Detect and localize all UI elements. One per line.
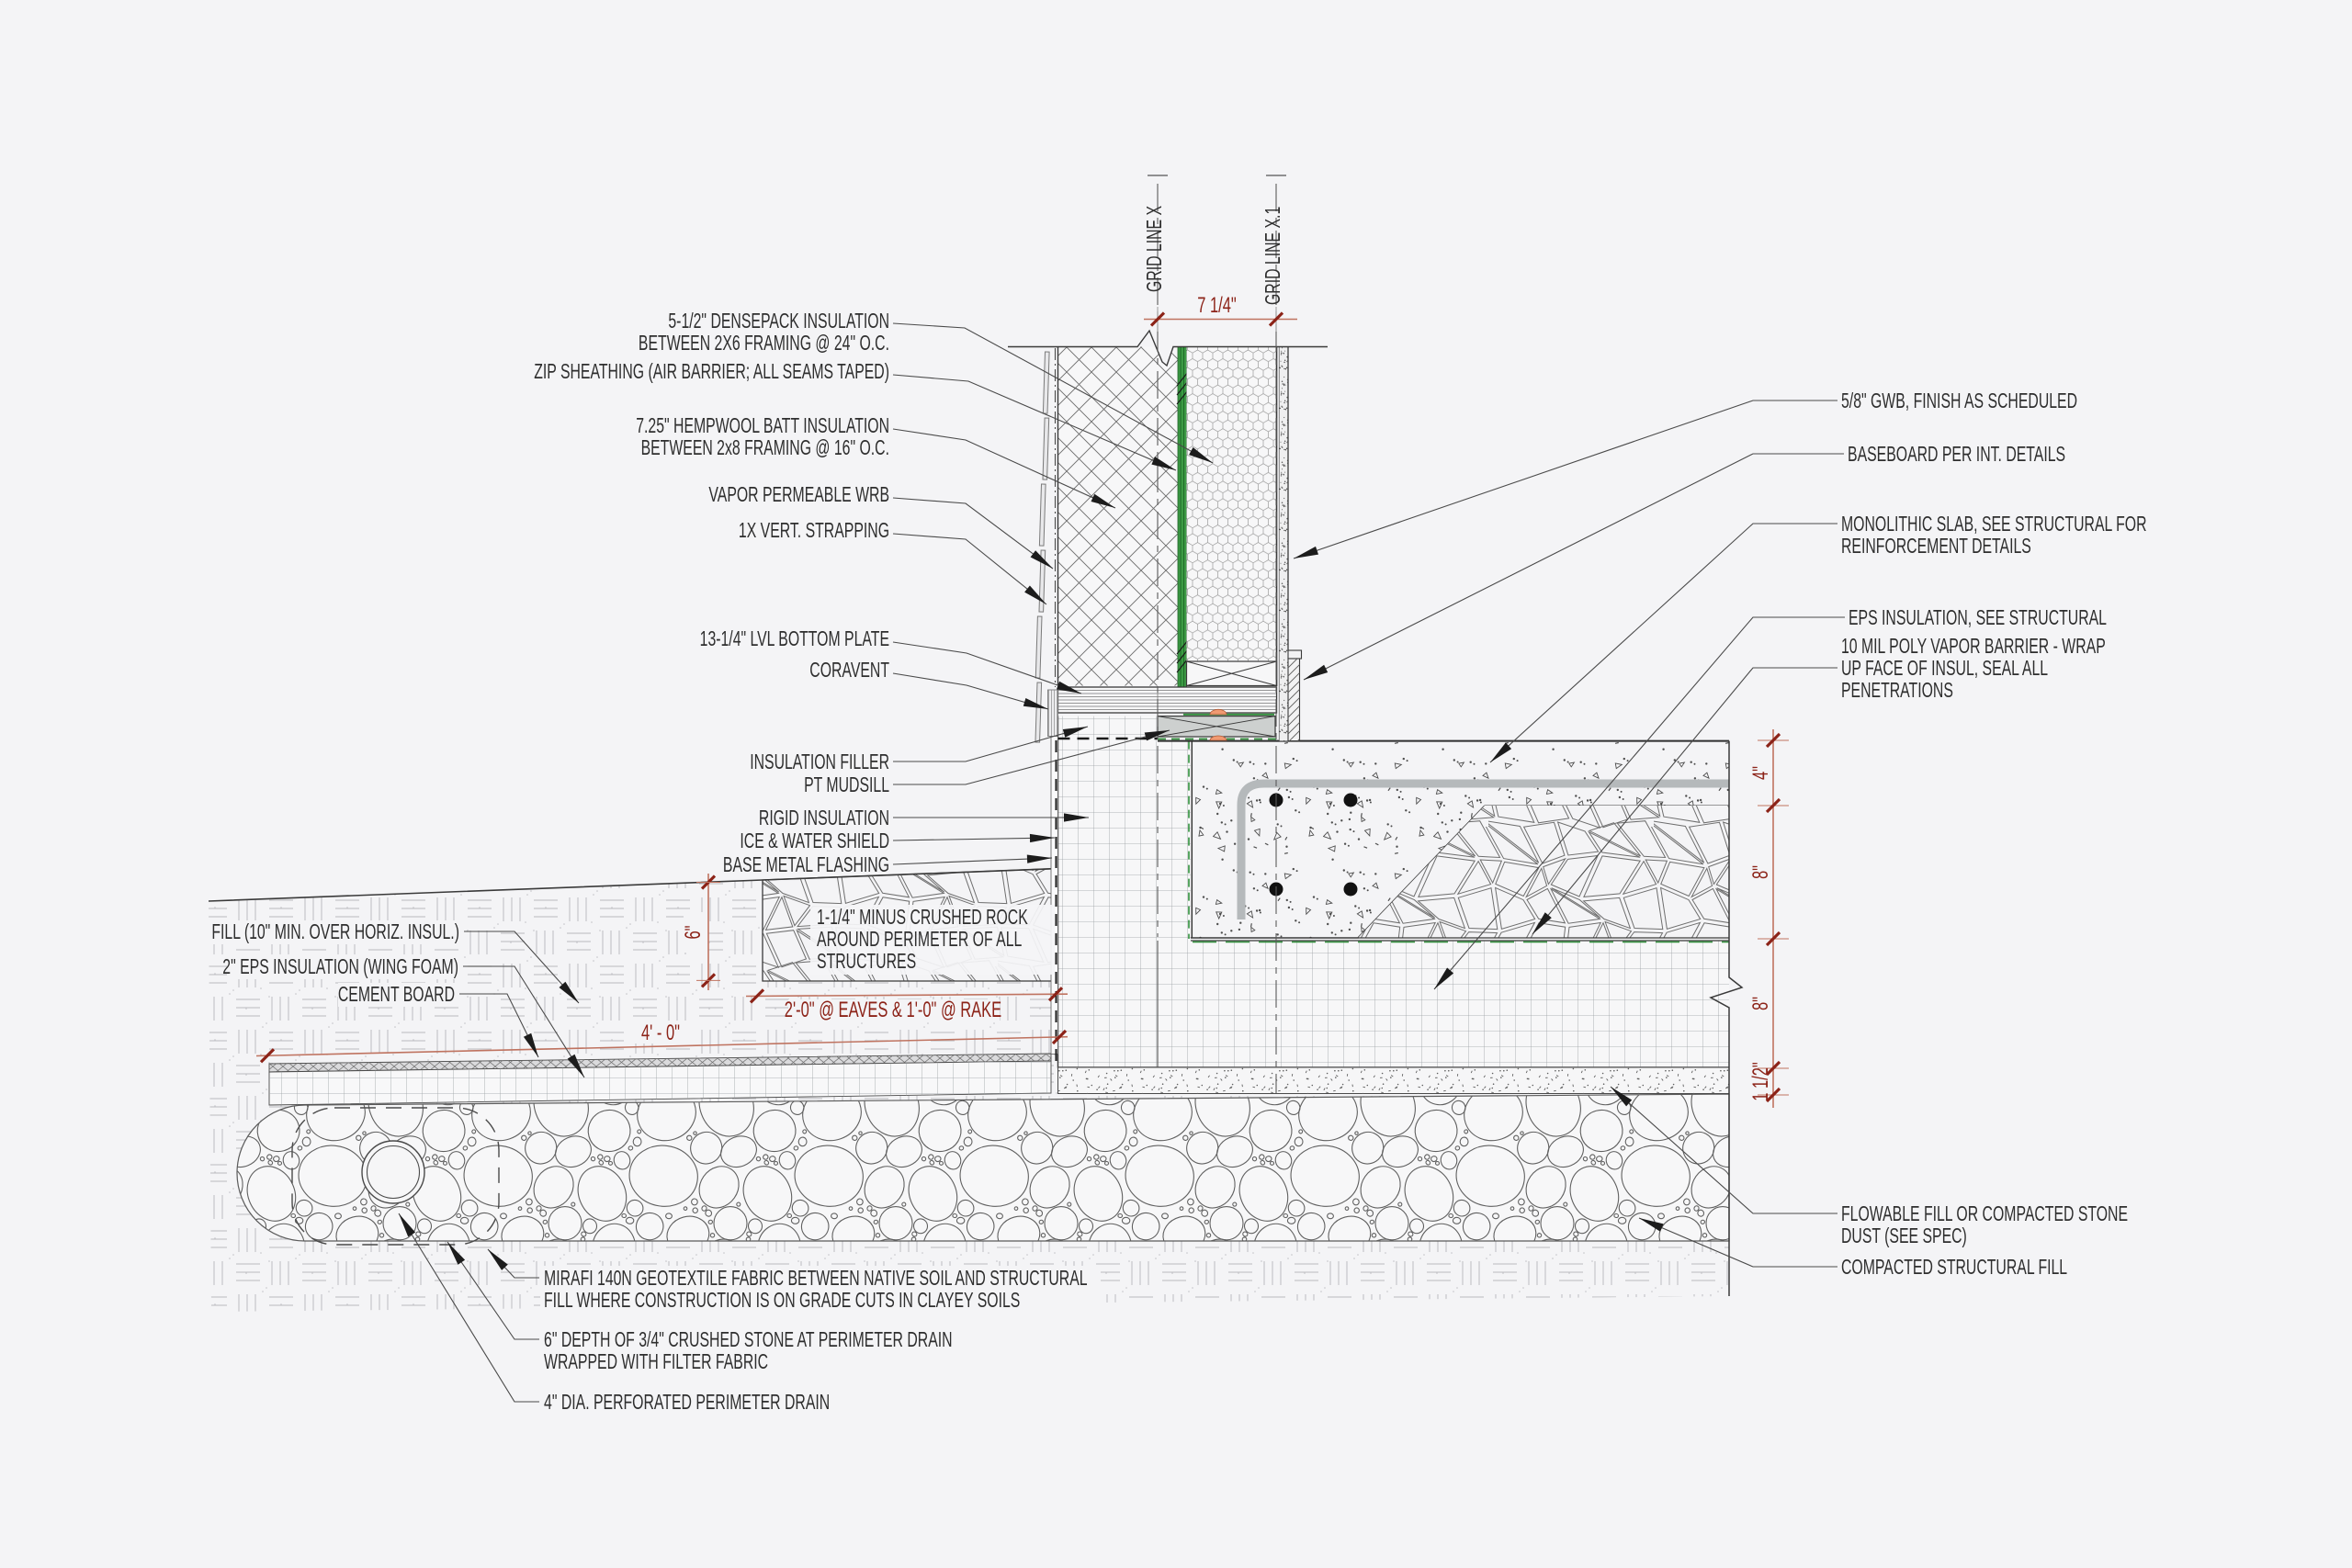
svg-text:VAPOR PERMEABLE WRB: VAPOR PERMEABLE WRB	[708, 483, 889, 507]
svg-text:GRID LINE X.1: GRID LINE X.1	[1261, 207, 1285, 305]
svg-text:5-1/2" DENSEPACK INSULATION: 5-1/2" DENSEPACK INSULATION	[668, 310, 889, 333]
svg-text:CEMENT BOARD: CEMENT BOARD	[338, 983, 455, 1007]
svg-text:FILL WHERE CONSTRUCTION IS ON: FILL WHERE CONSTRUCTION IS ON GRADE CUTS…	[544, 1289, 1020, 1313]
svg-text:4" DIA. PERFORATED PERIMETER D: 4" DIA. PERFORATED PERIMETER DRAIN	[544, 1391, 830, 1415]
svg-text:UP FACE OF INSUL, SEAL ALL: UP FACE OF INSUL, SEAL ALL	[1841, 657, 2048, 681]
svg-text:DUST (SEE SPEC): DUST (SEE SPEC)	[1841, 1224, 1967, 1248]
svg-text:COMPACTED STRUCTURAL FILL: COMPACTED STRUCTURAL FILL	[1841, 1256, 2067, 1280]
svg-text:10 MIL POLY VAPOR BARRIER - WR: 10 MIL POLY VAPOR BARRIER - WRAP	[1841, 635, 2106, 659]
svg-text:5/8" GWB, FINISH AS SCHEDULED: 5/8" GWB, FINISH AS SCHEDULED	[1841, 389, 2077, 413]
svg-text:AROUND PERIMETER OF ALL: AROUND PERIMETER OF ALL	[817, 928, 1022, 952]
svg-text:BETWEEN 2X6 FRAMING @ 24" O.C.: BETWEEN 2X6 FRAMING @ 24" O.C.	[639, 332, 889, 355]
svg-text:BETWEEN 2x8 FRAMING @ 16" O.C.: BETWEEN 2x8 FRAMING @ 16" O.C.	[641, 436, 889, 460]
svg-text:GRID LINE X: GRID LINE X	[1143, 206, 1167, 292]
svg-text:BASE METAL FLASHING: BASE METAL FLASHING	[723, 853, 889, 877]
svg-text:6": 6"	[681, 925, 706, 939]
svg-text:BASEBOARD PER INT. DETAILS: BASEBOARD PER INT. DETAILS	[1848, 443, 2065, 467]
svg-text:4' - 0": 4' - 0"	[641, 1021, 680, 1045]
svg-text:8": 8"	[1748, 865, 1773, 879]
svg-text:FLOWABLE FILL OR COMPACTED STO: FLOWABLE FILL OR COMPACTED STONE	[1841, 1202, 2128, 1226]
svg-text:MIRAFI 140N GEOTEXTILE FABRIC: MIRAFI 140N GEOTEXTILE FABRIC BETWEEN NA…	[544, 1267, 1088, 1291]
svg-text:7.25" HEMPWOOL BATT INSULATION: 7.25" HEMPWOOL BATT INSULATION	[636, 414, 889, 438]
svg-text:EPS INSULATION, SEE STRUCTURAL: EPS INSULATION, SEE STRUCTURAL	[1849, 606, 2107, 630]
svg-text:ZIP SHEATHING (AIR BARRIER; AL: ZIP SHEATHING (AIR BARRIER; ALL SEAMS TA…	[534, 360, 889, 384]
svg-text:7 1/4": 7 1/4"	[1197, 293, 1237, 318]
svg-text:CORAVENT: CORAVENT	[809, 659, 889, 682]
svg-text:1X VERT. STRAPPING: 1X VERT. STRAPPING	[739, 519, 889, 543]
svg-text:4": 4"	[1748, 766, 1773, 780]
svg-text:8": 8"	[1748, 997, 1773, 1010]
svg-text:RIGID INSULATION: RIGID INSULATION	[759, 807, 889, 830]
svg-text:1-1/4" MINUS CRUSHED ROCK: 1-1/4" MINUS CRUSHED ROCK	[817, 906, 1028, 930]
svg-text:INSULATION FILLER: INSULATION FILLER	[750, 750, 889, 774]
svg-text:PENETRATIONS: PENETRATIONS	[1841, 679, 1953, 703]
svg-text:2" EPS INSULATION (WING FOAM): 2" EPS INSULATION (WING FOAM)	[222, 955, 458, 979]
svg-text:1 1/2": 1 1/2"	[1748, 1062, 1773, 1101]
svg-text:WRAPPED WITH FILTER FABRIC: WRAPPED WITH FILTER FABRIC	[544, 1350, 768, 1374]
svg-text:REINFORCEMENT DETAILS: REINFORCEMENT DETAILS	[1841, 535, 2031, 558]
svg-text:ICE & WATER SHIELD: ICE & WATER SHIELD	[740, 829, 889, 853]
svg-text:13-1/4" LVL BOTTOM PLATE: 13-1/4" LVL BOTTOM PLATE	[700, 627, 889, 651]
svg-text:6" DEPTH OF 3/4" CRUSHED STONE: 6" DEPTH OF 3/4" CRUSHED STONE AT PERIME…	[544, 1328, 953, 1352]
svg-text:PT MUDSILL: PT MUDSILL	[804, 773, 889, 797]
svg-text:STRUCTURES: STRUCTURES	[817, 950, 916, 974]
svg-text:FILL (10" MIN. OVER HORIZ. INS: FILL (10" MIN. OVER HORIZ. INSUL.)	[211, 920, 459, 944]
svg-text:MONOLITHIC SLAB, SEE STRUCTURA: MONOLITHIC SLAB, SEE STRUCTURAL FOR	[1841, 513, 2147, 536]
svg-text:2'-0" @ EAVES & 1'-0" @ RAKE: 2'-0" @ EAVES & 1'-0" @ RAKE	[785, 998, 1001, 1022]
